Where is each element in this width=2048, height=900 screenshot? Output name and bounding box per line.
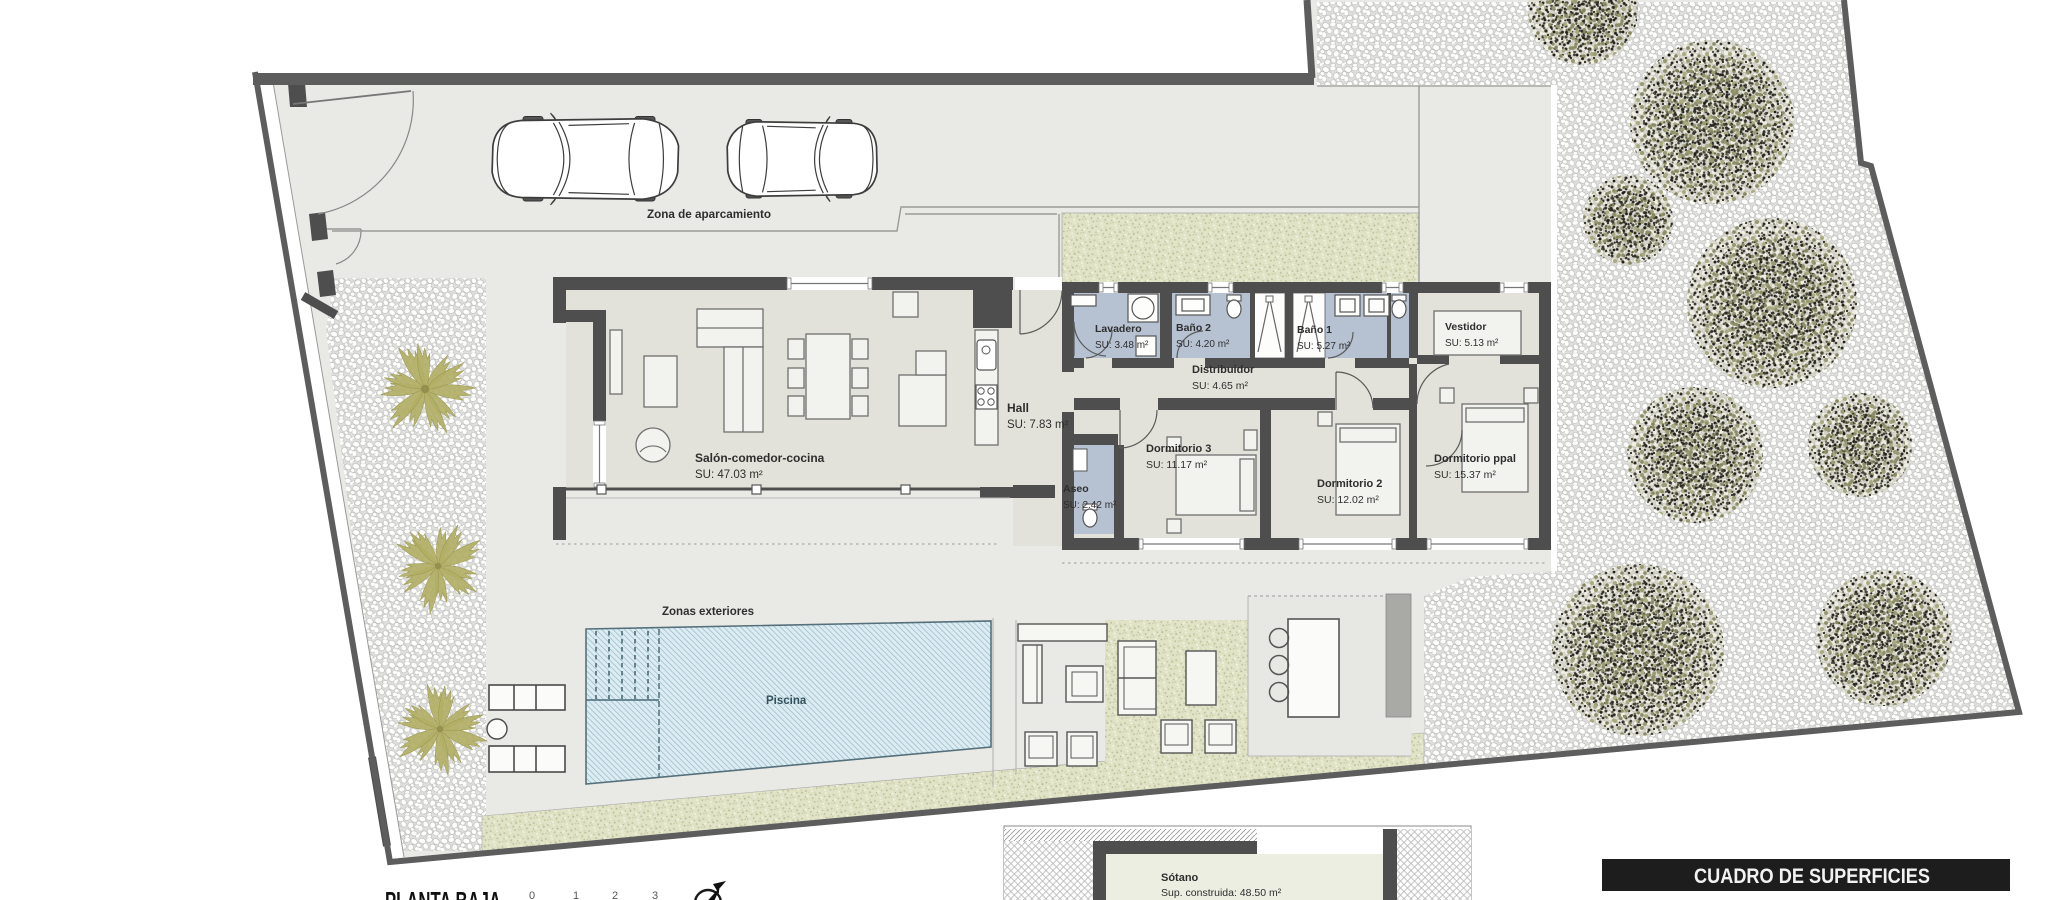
svg-text:SU: 5.27 m²: SU: 5.27 m² (1297, 341, 1351, 352)
svg-text:1: 1 (573, 890, 579, 900)
svg-text:SU: 7.83 m²: SU: 7.83 m² (1007, 419, 1069, 431)
svg-text:Sótano: Sótano (1161, 872, 1199, 884)
svg-text:SU: 11.17 m²: SU: 11.17 m² (1146, 459, 1208, 471)
svg-text:Baño 1: Baño 1 (1297, 324, 1332, 336)
svg-text:Dormitorio 3: Dormitorio 3 (1146, 443, 1211, 455)
svg-text:Distribuidor: Distribuidor (1192, 364, 1255, 376)
svg-text:PLANTA BAJA: PLANTA BAJA (385, 886, 501, 900)
svg-text:Piscina: Piscina (766, 695, 807, 707)
svg-text:CUADRO DE SUPERFICIES: CUADRO DE SUPERFICIES (1694, 865, 1930, 888)
svg-text:SU: 15.37 m²: SU: 15.37 m² (1434, 469, 1496, 481)
svg-text:SU: 47.03 m²: SU: 47.03 m² (695, 469, 763, 481)
svg-text:Lavadero: Lavadero (1095, 323, 1142, 335)
svg-text:SU: 4.20 m²: SU: 4.20 m² (1176, 339, 1230, 350)
svg-text:Dormitorio 2: Dormitorio 2 (1317, 478, 1382, 490)
svg-text:Salón-comedor-cocina: Salón-comedor-cocina (695, 451, 825, 465)
svg-text:SU: 12.02 m²: SU: 12.02 m² (1317, 494, 1379, 506)
svg-text:Vestidor: Vestidor (1445, 321, 1486, 333)
svg-text:Zonas exteriores: Zonas exteriores (662, 606, 754, 618)
svg-text:SU: 5.13 m²: SU: 5.13 m² (1445, 338, 1499, 349)
svg-text:SU: 4.65 m²: SU: 4.65 m² (1192, 380, 1249, 392)
svg-text:SU: 3.48 m²: SU: 3.48 m² (1095, 340, 1149, 351)
svg-text:2: 2 (612, 890, 618, 900)
svg-text:Sup. construida: 48.50 m²: Sup. construida: 48.50 m² (1161, 887, 1282, 899)
svg-text:0: 0 (529, 890, 535, 900)
svg-text:3: 3 (652, 890, 658, 900)
svg-text:Hall: Hall (1007, 401, 1029, 415)
svg-text:SU: 2.42 m²: SU: 2.42 m² (1063, 500, 1117, 511)
svg-text:Zona de aparcamiento: Zona de aparcamiento (647, 209, 771, 221)
svg-text:Dormitorio ppal: Dormitorio ppal (1434, 453, 1516, 465)
svg-text:Aseo: Aseo (1063, 483, 1089, 495)
svg-text:Baño 2: Baño 2 (1176, 322, 1211, 334)
